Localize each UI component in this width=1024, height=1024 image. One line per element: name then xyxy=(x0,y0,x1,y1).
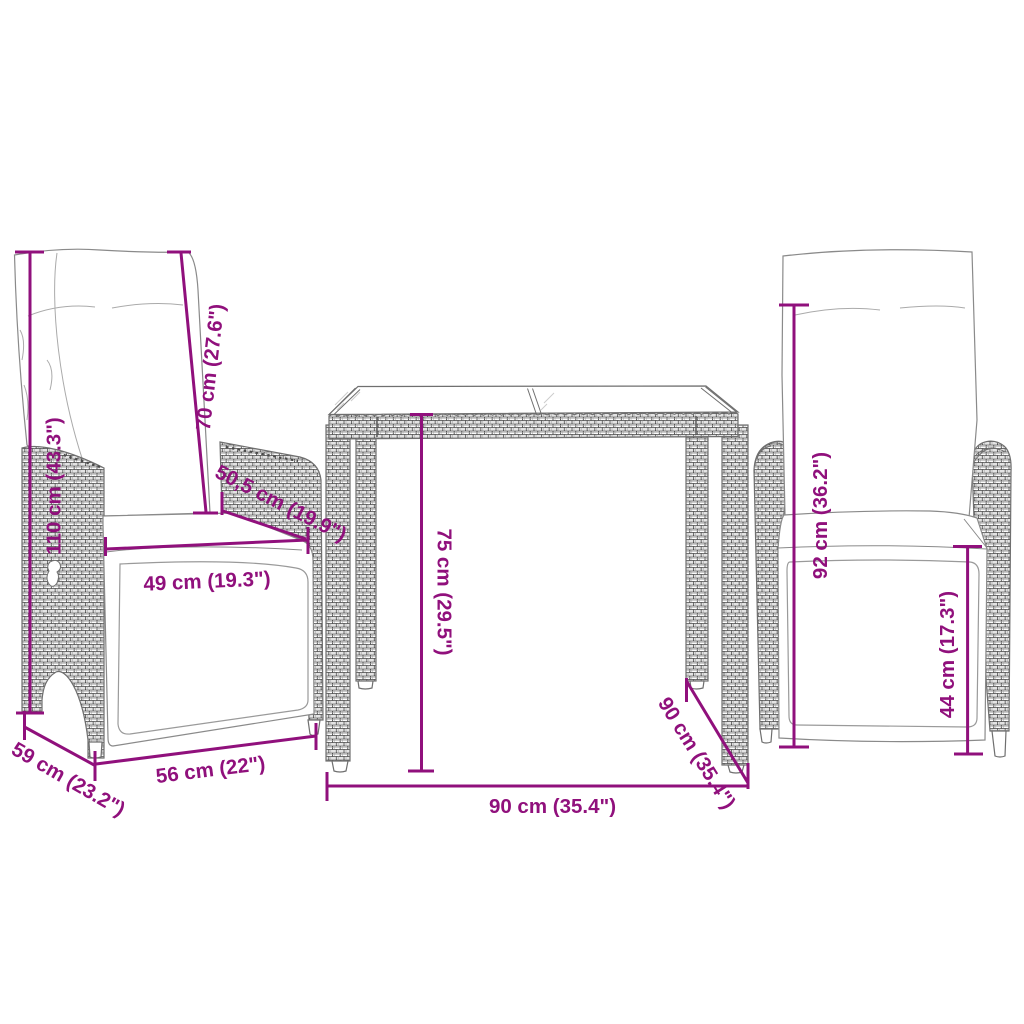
svg-text:92 cm (36.2"): 92 cm (36.2") xyxy=(809,452,832,579)
svg-text:75 cm (29.5"): 75 cm (29.5") xyxy=(433,528,456,655)
svg-text:90 cm (35.4"): 90 cm (35.4") xyxy=(489,795,616,818)
svg-text:44 cm (17.3"): 44 cm (17.3") xyxy=(936,591,959,718)
svg-text:110 cm (43.3"): 110 cm (43.3") xyxy=(43,417,66,554)
